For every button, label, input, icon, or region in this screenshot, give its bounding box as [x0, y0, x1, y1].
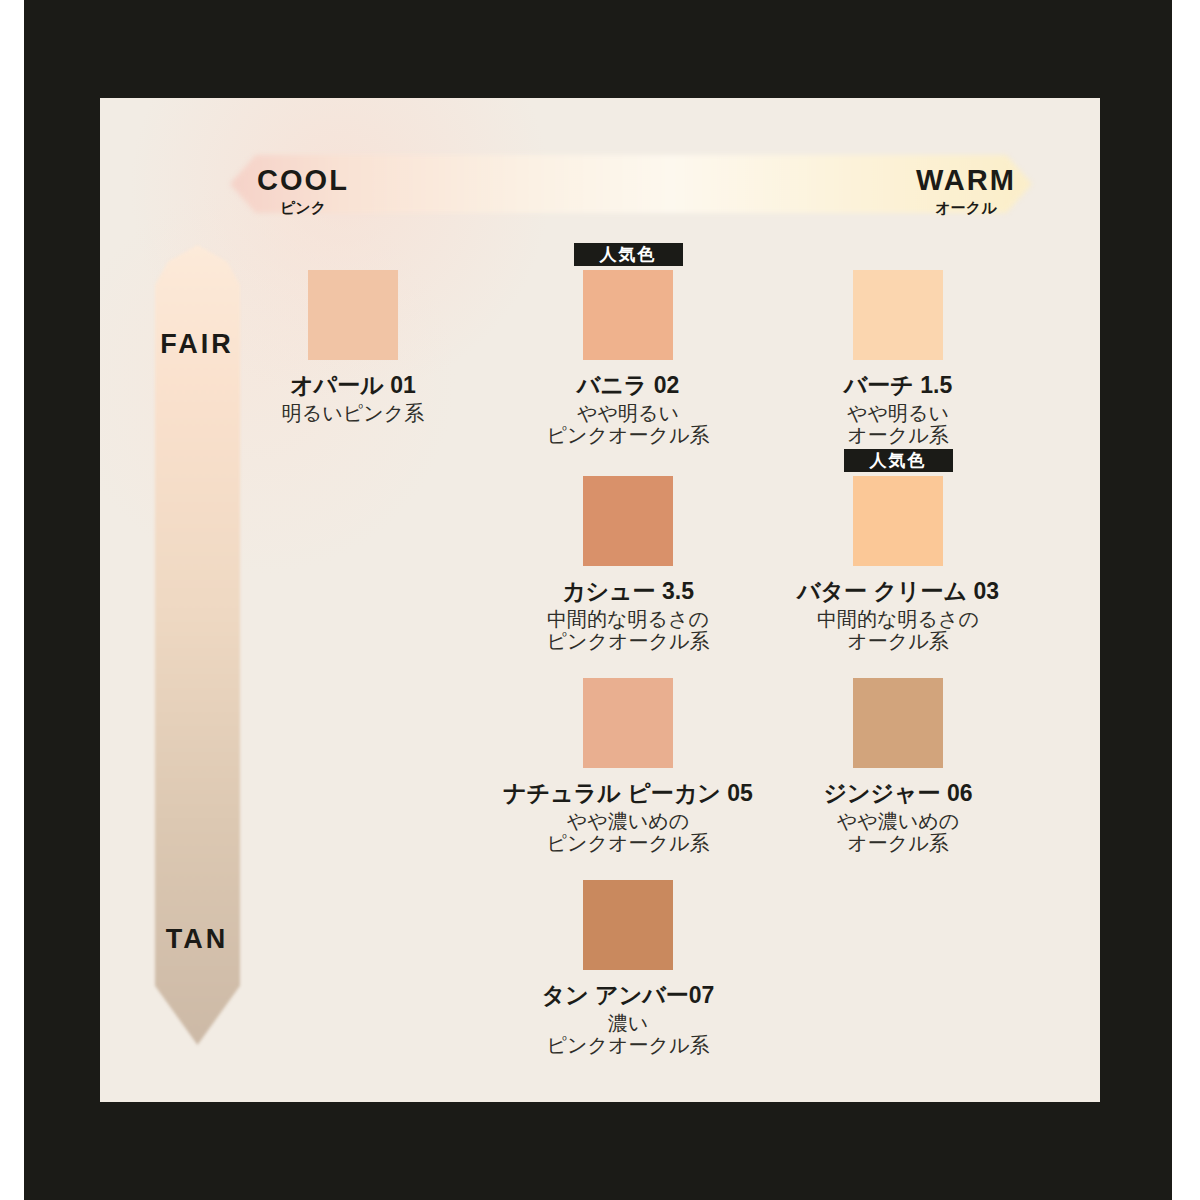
shade-name: ナチュラル ピーカン 05: [503, 781, 753, 806]
shade-chart-panel: COOL ピンク WARM オークル FAIR TAN オパール 01 明るいピ…: [100, 98, 1100, 1102]
shade-description: 濃いピンクオークル系: [547, 1012, 710, 1056]
warm-sublabel: オークル: [896, 200, 1036, 215]
shade-swatch: [853, 476, 943, 566]
shade-swatch: [583, 880, 673, 970]
shade-description: 中間的な明るさのオークル系: [817, 608, 979, 652]
shade-cell: 人気色 バター クリーム 03 中間的な明るさのオークル系: [768, 476, 1028, 652]
cool-sublabel: ピンク: [233, 200, 373, 215]
shade-chart-page: COOL ピンク WARM オークル FAIR TAN オパール 01 明るいピ…: [0, 0, 1200, 1200]
shade-description: やや明るいピンクオークル系: [547, 402, 710, 446]
shade-description: やや濃いめのオークル系: [837, 810, 959, 854]
popular-badge: 人気色: [844, 449, 953, 472]
shade-cell: オパール 01 明るいピンク系: [223, 270, 483, 424]
tan-label: TAN: [137, 926, 257, 953]
shade-cell: ジンジャー 06 やや濃いめのオークル系: [768, 678, 1028, 854]
shade-description: 中間的な明るさのピンクオークル系: [547, 608, 710, 652]
shade-name: カシュー 3.5: [562, 579, 694, 604]
shade-description: やや濃いめのピンクオークル系: [547, 810, 710, 854]
shade-name: バター クリーム 03: [797, 579, 999, 604]
shade-name: バーチ 1.5: [844, 373, 952, 398]
shade-name: オパール 01: [290, 373, 416, 398]
shade-description: 明るいピンク系: [282, 402, 424, 424]
shade-swatch: [308, 270, 398, 360]
shade-swatch: [583, 678, 673, 768]
shade-cell: バーチ 1.5 やや明るいオークル系: [768, 270, 1028, 446]
cool-label: COOL: [233, 166, 373, 195]
cool-axis-label-group: COOL ピンク: [233, 166, 373, 215]
shade-cell: カシュー 3.5 中間的な明るさのピンクオークル系: [498, 476, 758, 652]
shade-name: ジンジャー 06: [823, 781, 972, 806]
shade-name: タン アンバー07: [542, 983, 715, 1008]
shade-swatch: [583, 476, 673, 566]
shade-swatch: [853, 678, 943, 768]
shade-name: バニラ 02: [577, 373, 680, 398]
popular-badge: 人気色: [574, 243, 683, 266]
warm-axis-label-group: WARM オークル: [896, 166, 1036, 215]
shade-swatch: [583, 270, 673, 360]
shade-swatch: [853, 270, 943, 360]
shade-cell: タン アンバー07 濃いピンクオークル系: [498, 880, 758, 1056]
shade-cell: ナチュラル ピーカン 05 やや濃いめのピンクオークル系: [498, 678, 758, 854]
shade-description: やや明るいオークル系: [847, 402, 949, 446]
warm-label: WARM: [896, 166, 1036, 195]
shade-cell: 人気色 バニラ 02 やや明るいピンクオークル系: [498, 270, 758, 446]
